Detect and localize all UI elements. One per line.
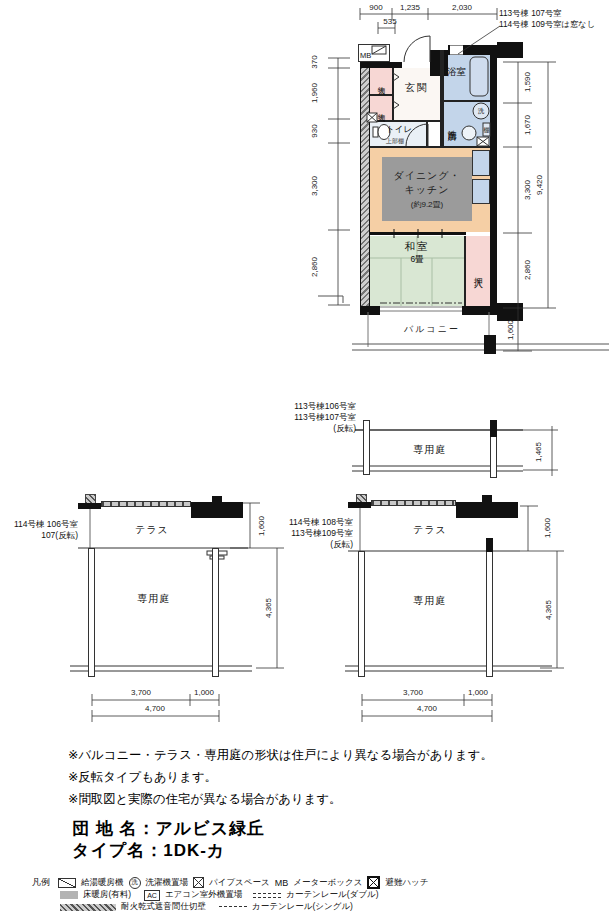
legend-row-2: 床暖房(有料) AC エアコン室外機置場 カーテンレール(ダブル) [60, 889, 378, 901]
curtain-rail-double-icon [253, 893, 281, 898]
terrace-c-wall-left [348, 502, 371, 508]
terrace-c-garden-label: 専用庭 [400, 594, 460, 608]
terrace-c-wall-top [482, 495, 492, 502]
terrace-b-partition-rail [101, 501, 191, 507]
legend-row-3: 耐火乾式遮音間仕切壁 カーテンレール(シングル) [60, 901, 353, 913]
dim-top-535: 535 [383, 17, 396, 26]
estate-name-label: 団 地 名： [72, 819, 155, 838]
terrace-b-wall-left [78, 503, 101, 509]
terrace-c-dim-4700: 4,700 [417, 704, 437, 713]
garden-a-dim-1465: 1,465 [534, 442, 543, 462]
window-note-line1: 113号棟 107号室 [499, 8, 595, 19]
terrace-c-terrace-label: テラス [400, 523, 460, 537]
floor-heating-icon [60, 891, 78, 899]
firewall-icon [60, 904, 116, 911]
terrace-b-wall-right [191, 502, 243, 518]
terrace-c-post-panel [486, 538, 493, 552]
shelf-label: 棚 [483, 126, 490, 134]
tatami-label: 和室 6畳 [386, 239, 448, 267]
terrace-c-dim-1600: 1,600 [543, 518, 552, 538]
legend-heading: 凡例 [32, 876, 50, 889]
dimension-lines-left [328, 58, 350, 305]
legend-water-heater: 給湯暖房機 [81, 877, 124, 889]
washroom-label: 洗面所 [445, 104, 458, 144]
pipe-space-icon [193, 877, 204, 888]
dim-left-930: 930 [310, 124, 319, 137]
legend-escape-hatch: 避難ハッチ [385, 877, 428, 889]
sliding-door-ticks [394, 229, 442, 238]
title-block: 団 地 名：アルビス緑丘 タイプ名：1DK-カ [72, 818, 265, 862]
dimension-lines-right [503, 62, 556, 351]
dim-left-1960: 1,960 [310, 83, 319, 103]
dim-right-2860: 2,860 [523, 260, 532, 280]
legend-curtain-single: カーテンレール(シングル) [252, 901, 353, 913]
terrace-c-post-left [358, 551, 365, 677]
terrace-b-post-left [88, 548, 95, 677]
storage-2-label: 物入 [370, 96, 392, 120]
dim-balcony-1600: 1,600 [506, 320, 515, 340]
terrace-c-label: 114号棟 108号室 113号棟109号室 (反転) [279, 517, 353, 550]
entrance-label: 玄関 [394, 70, 440, 106]
type-name-label: タイプ名： [72, 841, 163, 860]
terrace-b-dim-4365: 4,365 [264, 598, 273, 618]
mb-label: MB [360, 51, 371, 60]
washer-symbol: 洗 [475, 105, 487, 117]
dim-left-370: 370 [310, 55, 319, 68]
legend-curtain-double: カーテンレール(ダブル) [286, 889, 378, 901]
estate-name-line: 団 地 名：アルビス緑丘 [72, 818, 265, 840]
garden-a-post-left [363, 420, 370, 475]
window-note-line2: 114号棟 109号室は窓なし [499, 19, 595, 30]
legend-ac-outdoor: エアコン室外機置場 [165, 889, 242, 901]
terrace-b-dim-4700: 4,700 [145, 704, 165, 713]
note-2: ※反転タイプもあります。 [68, 766, 493, 788]
type-name-value: 1DK-カ [163, 841, 225, 860]
escape-hatch-icon [367, 876, 380, 889]
terrace-c-dim-4365: 4,365 [544, 600, 553, 620]
legend-row-1: 凡例 給湯暖房機 洗 洗濯機置場 パイプスペース MB メーターボックス 避難ハ… [32, 876, 429, 889]
terrace-b-dim-1000: 1,000 [194, 688, 214, 697]
type-name-line: タイプ名：1DK-カ [72, 840, 265, 862]
balcony-partition-panel [484, 335, 496, 354]
garden-a-post-cap [490, 420, 497, 437]
legend-mb-symbol: MB [275, 878, 289, 888]
dim-right-1670: 1,670 [523, 115, 532, 135]
floorplan-page: MB 物入 物入 玄関 トイレ 上部棚 浴室 洗面所 洗 棚 ダイニング・ キッ… [0, 0, 609, 915]
dim-top-1235: 1,235 [400, 3, 420, 12]
dim-right-3300: 3,300 [523, 180, 532, 200]
dk-label: ダイニング・ キッチン (約9.2畳) [382, 157, 472, 221]
closet-label: 押入 [466, 246, 490, 296]
dim-top-2030: 2,030 [452, 3, 472, 12]
garden-a-label: 113号棟106号室 113号棟107号室 (反転) [278, 401, 356, 434]
legend-washer: 洗濯機置場 [146, 877, 189, 889]
terrace-c-wall-right [456, 502, 518, 518]
terrace-b-garden-label: 専用庭 [124, 592, 184, 606]
terrace-c-post-right [486, 551, 493, 677]
bath-label: 浴室 [447, 66, 466, 79]
washer-place-icon: 洗 [129, 877, 141, 889]
water-heater-icon [58, 878, 76, 888]
curtain-rail-single-icon [219, 906, 247, 909]
dim-left-3300: 3,300 [310, 176, 319, 196]
terrace-c-lines [345, 506, 564, 722]
note-3: ※間取図と実際の住宅が異なる場合があります。 [68, 788, 493, 810]
terrace-b-post-right [212, 548, 219, 677]
terrace-b-dim-1600: 1,600 [257, 516, 266, 536]
estate-name-value: アルビス緑丘 [155, 819, 265, 838]
dim-right-1590: 1,590 [523, 72, 532, 92]
terrace-b-dim-3700: 3,700 [131, 688, 151, 697]
terrace-b-wall-top [212, 496, 222, 502]
note-1: ※バルコニー・テラス・専用庭の形状は住戸により異なる場合があります。 [68, 744, 493, 766]
legend-pipe-space: パイプスペース [209, 877, 270, 889]
window-note: 113号棟 107号室 114号棟 109号室は窓なし [499, 8, 595, 30]
balcony-label: バルコニー [392, 322, 472, 336]
terrace-b-label: 114号棟 106号室 107(反転) [2, 519, 78, 541]
terrace-c-dim-1000: 1,000 [468, 688, 488, 697]
terrace-c-dim-3700: 3,700 [403, 688, 423, 697]
toilet-label: トイレ [386, 124, 412, 136]
toilet-shelf-label: 上部棚 [386, 137, 404, 146]
notes: ※バルコニー・テラス・専用庭の形状は住戸により異なる場合があります。 ※反転タイ… [68, 744, 493, 810]
dim-right-9420: 9,420 [535, 175, 544, 195]
storage-1-label: 物入 [370, 68, 392, 94]
legend-firewall: 耐火乾式遮音間仕切壁 [121, 901, 206, 913]
dim-top-900: 900 [369, 3, 382, 12]
ac-icon: AC [144, 890, 160, 901]
dim-left-2860: 2,860 [310, 257, 319, 277]
terrace-c-partition-rail [371, 500, 456, 506]
legend-floor-heating: 床暖房(有料) [83, 889, 131, 901]
terrace-b-terrace-label: テラス [122, 523, 182, 537]
garden-a-area-label: 専用庭 [400, 443, 460, 457]
legend-meter-box: メーターボックス [293, 877, 362, 889]
